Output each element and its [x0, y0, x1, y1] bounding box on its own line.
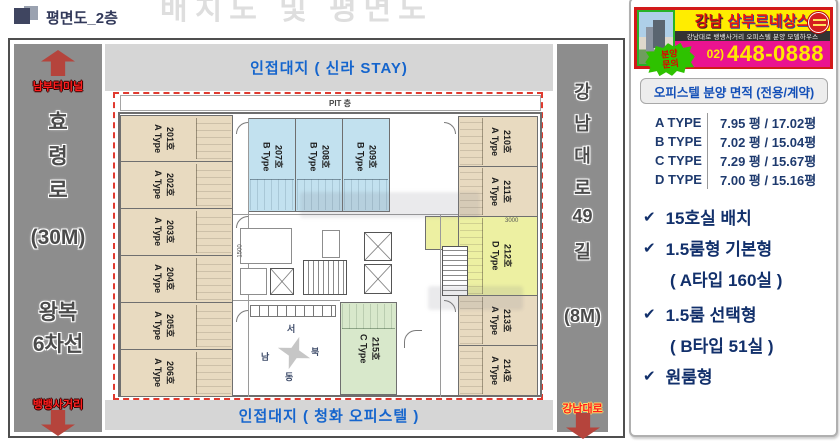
- unit-type: B Type: [307, 142, 319, 171]
- area-value: 7.02 평 / 15.04평: [707, 132, 827, 151]
- unit-210: 210호A Type: [458, 116, 538, 167]
- unit-214: 214호A Type: [458, 345, 538, 396]
- road-name-char: 로: [557, 174, 608, 200]
- area-type: C TYPE: [645, 153, 707, 168]
- unit-type: A Type: [489, 177, 501, 206]
- feature-item: ✔15호실 배치: [643, 201, 835, 232]
- area-row: B TYPE7.02 평 / 15.04평: [645, 132, 827, 151]
- unit-number: 207호: [272, 142, 284, 171]
- feature-item: ✔1.5룸 선택형: [643, 298, 835, 329]
- unit-type: A Type: [489, 356, 501, 385]
- destination-label: 남부터미널: [14, 78, 102, 94]
- area-type: D TYPE: [645, 172, 707, 187]
- road-name-char: 남: [557, 110, 608, 136]
- check-icon: ✔: [643, 239, 656, 257]
- feature-text: 원룸형: [666, 363, 713, 388]
- area-type: A TYPE: [645, 115, 707, 130]
- unit-number: 206호: [164, 358, 176, 387]
- pit-label: PIT 층: [300, 98, 380, 109]
- compass-east: 동: [285, 370, 293, 383]
- area-table-title: 오피스텔 분양 면적 (전용/계약): [640, 78, 828, 104]
- check-icon: ✔: [643, 367, 656, 385]
- elevator-icon: [270, 268, 294, 295]
- unit-204: 204호A Type: [120, 255, 233, 303]
- road-name-char: 대: [557, 142, 608, 168]
- area-value: 7.95 평 / 17.02평: [707, 113, 827, 132]
- phone-strip: 02) 448-0888: [675, 41, 830, 67]
- elevator-icon: [364, 264, 392, 294]
- adjacent-site-top-label: 인접대지 ( 신라 STAY): [250, 57, 408, 78]
- title-square-icon: [14, 8, 30, 24]
- road-lanes-label: 6차선: [14, 328, 102, 358]
- road-name-char: 강: [557, 78, 608, 104]
- unit-215: 215호C Type: [340, 302, 397, 395]
- road-name-char: 49: [557, 206, 608, 227]
- compass-north: 북: [311, 345, 319, 358]
- feature-item: ✔1.5룸형 기본형: [643, 232, 835, 263]
- feature-item: ✔원룸형: [643, 360, 835, 391]
- unit-number: 210호: [500, 127, 512, 156]
- unit-type: A Type: [152, 358, 164, 387]
- road-width-label: (8M): [557, 306, 608, 327]
- banner-subtitle: 강남대로 뱅뱅사거리 오피스텔 분양 모델하우스: [675, 31, 830, 41]
- core-room: [322, 230, 340, 258]
- road-name-char: 길: [557, 238, 608, 264]
- unit-212: 212호D Type: [458, 216, 538, 296]
- phone-prefix: 02): [707, 47, 724, 61]
- unit-type: A Type: [152, 264, 164, 293]
- feature-text: 1.5룸 선택형: [666, 301, 757, 326]
- unit-number: 201호: [164, 124, 176, 153]
- area-row: C TYPE7.29 평 / 15.67평: [645, 151, 827, 170]
- background-heading: 배치도 및 평면도: [160, 0, 433, 28]
- unit-201: 201호A Type: [120, 115, 233, 162]
- road-left-hyoryeongro: 남부터미널 (30M) 왕복 6차선 뱅뱅사거리 효령로: [14, 44, 102, 432]
- banner-content: 강남 삼부르네상스 강남대로 뱅뱅사거리 오피스텔 분양 모델하우스 02) 4…: [675, 10, 830, 66]
- dimension-label: 3000: [505, 218, 518, 224]
- unit-number: 202호: [164, 170, 176, 199]
- unit-type: A Type: [152, 217, 164, 246]
- road-lanes-label: 왕복: [14, 296, 102, 326]
- unit-number: 212호: [500, 241, 512, 270]
- promo-seal-badge: [808, 12, 829, 33]
- stairs: [303, 260, 347, 295]
- area-type: B TYPE: [645, 134, 707, 149]
- feature-text: 1.5룸형 기본형: [666, 235, 773, 260]
- unit-203: 203호A Type: [120, 208, 233, 256]
- watermark: [300, 192, 480, 218]
- destination-label: 뱅뱅사거리: [14, 396, 102, 412]
- arrow-up-icon: [41, 50, 75, 76]
- unit-type: A Type: [489, 306, 501, 335]
- watermark: [428, 286, 523, 310]
- inquiry-line: 문의: [662, 58, 680, 70]
- area-table: A TYPE7.95 평 / 17.02평B TYPE7.02 평 / 15.0…: [645, 113, 827, 189]
- road-width-label: (30M): [14, 226, 102, 250]
- adjacent-site-top: 인접대지 ( 신라 STAY): [105, 44, 553, 91]
- road-name-char: 령: [14, 140, 102, 170]
- unit-202: 202호A Type: [120, 161, 233, 209]
- mailbox-row: [250, 305, 336, 317]
- adjacent-site-bottom: 인접대지 ( 청화 오피스텔 ): [105, 400, 553, 430]
- compass-south: 남: [261, 350, 269, 363]
- unit-number: 215호: [369, 334, 381, 363]
- floor-plan-flyer: { "page": { "doc_title": "평면도_2층", "bg_h…: [0, 0, 840, 443]
- unit-number: 211호: [500, 177, 512, 206]
- banner-title: 강남 삼부르네상스: [675, 10, 830, 31]
- feature-subtext: ( B타입 51실 ): [670, 329, 835, 360]
- area-value: 7.29 평 / 15.67평: [707, 151, 827, 170]
- area-value: 7.00 평 / 15.16평: [707, 170, 827, 189]
- area-row: D TYPE7.00 평 / 15.16평: [645, 170, 827, 189]
- unit-number: 209호: [366, 142, 378, 171]
- unit-number: 208호: [319, 142, 331, 171]
- adjacent-site-bottom-label: 인접대지 ( 청화 오피스텔 ): [239, 405, 420, 426]
- unit-type: B Type: [260, 142, 272, 171]
- feature-text: 15호실 배치: [666, 204, 752, 229]
- unit-type: B Type: [354, 142, 366, 171]
- ad-banner: 강남 삼부르네상스 강남대로 뱅뱅사거리 오피스텔 분양 모델하우스 02) 4…: [634, 7, 833, 69]
- door-arc: [404, 330, 422, 348]
- check-icon: ✔: [643, 208, 656, 226]
- doc-title: 평면도_2층: [6, 2, 136, 28]
- unit-type: A Type: [489, 127, 501, 156]
- building-silhouette: [653, 20, 665, 48]
- banner-title-area: 강남: [695, 10, 723, 31]
- unit-type: C Type: [357, 334, 369, 363]
- unit-type: D Type: [489, 241, 501, 270]
- unit-number: 204호: [164, 264, 176, 293]
- unit-number: 214호: [500, 356, 512, 385]
- unit-type: A Type: [152, 124, 164, 153]
- core-room: [240, 228, 292, 264]
- area-row: A TYPE7.95 평 / 17.02평: [645, 113, 827, 132]
- compass-west: 서: [287, 322, 295, 335]
- unit-type: A Type: [152, 170, 164, 199]
- elevator-icon: [364, 232, 392, 261]
- feature-subtext: ( A타입 160실 ): [670, 263, 835, 294]
- page-title: 평면도_2층: [46, 7, 118, 28]
- phone-number: 448-0888: [727, 41, 824, 67]
- unit-207: 207호B Type: [248, 118, 296, 212]
- unit-205: 205호A Type: [120, 302, 233, 350]
- dimension-label: 1500: [238, 244, 244, 257]
- unit-type: A Type: [152, 311, 164, 340]
- unit-number: 205호: [164, 311, 176, 340]
- road-name-char: 로: [14, 174, 102, 204]
- wall-line: [233, 300, 340, 301]
- check-icon: ✔: [643, 305, 656, 323]
- road-right-gangnamdaero49gil: (8M) 강남대로 강남대로49길: [557, 44, 608, 432]
- road-name-char: 효: [14, 106, 102, 136]
- core-room: [240, 268, 267, 295]
- sales-info-panel: 강남 삼부르네상스 강남대로 뱅뱅사거리 오피스텔 분양 모델하우스 02) 4…: [629, 0, 838, 437]
- unit-212-arm: [425, 216, 459, 250]
- unit-206: 206호A Type: [120, 349, 233, 397]
- feature-list: ✔15호실 배치✔1.5룸형 기본형( A타입 160실 )✔1.5룸 선택형(…: [643, 201, 835, 391]
- unit-number: 213호: [500, 306, 512, 335]
- banner-title-name: 삼부르네상스: [727, 10, 810, 31]
- unit-number: 203호: [164, 217, 176, 246]
